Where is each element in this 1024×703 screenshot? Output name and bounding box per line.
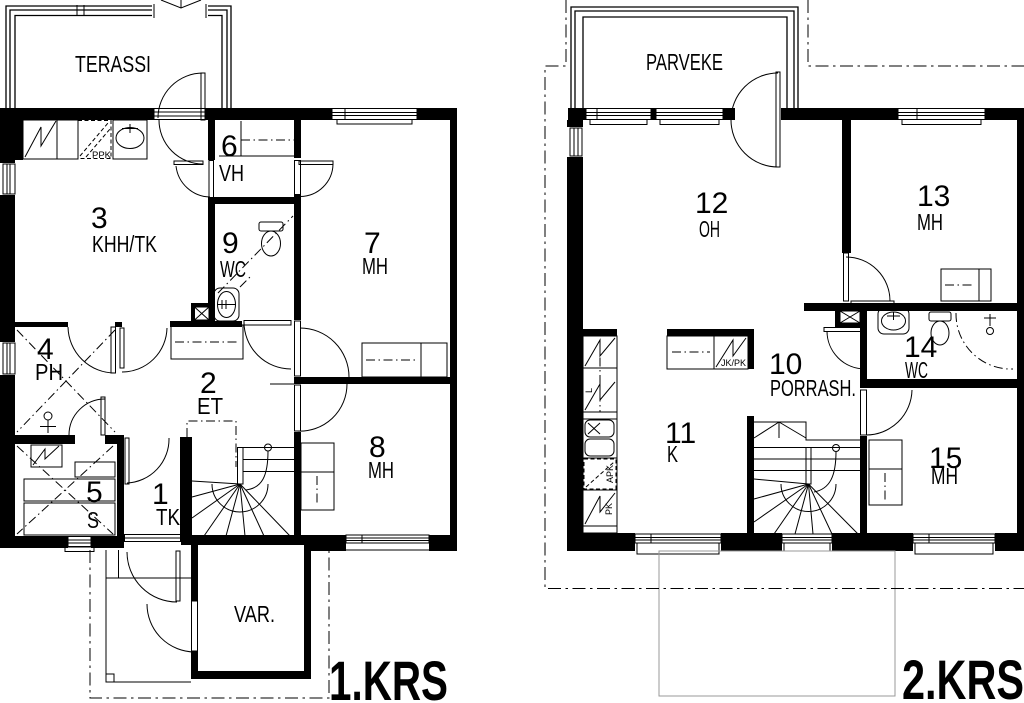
svg-text:PORRASH.: PORRASH. [770,375,856,401]
svg-text:VH: VH [219,160,244,186]
svg-text:WC: WC [905,357,928,383]
svg-text:PH: PH [35,359,63,385]
svg-text:ET: ET [197,393,223,419]
svg-text:MH: MH [931,463,958,489]
svg-text:WC: WC [220,256,246,282]
svg-text:PPK: PPK [92,150,111,160]
svg-text:PARVEKE: PARVEKE [646,49,723,75]
svg-text:TERASSI: TERASSI [75,51,151,77]
svg-text:6: 6 [221,130,238,163]
svg-text:L: L [584,388,594,393]
svg-text:OH: OH [699,216,720,242]
svg-text:JK/PK: JK/PK [721,358,746,368]
svg-text:K: K [667,441,678,467]
svg-text:MH: MH [368,457,394,483]
svg-text:KHH/TK: KHH/TK [92,231,158,257]
svg-text:2.KRS: 2.KRS [902,648,1024,703]
svg-text:S: S [87,507,99,533]
svg-text:MH: MH [362,253,388,279]
svg-text:5: 5 [86,476,103,509]
svg-text:VAR.: VAR. [234,601,275,627]
svg-text:1.KRS: 1.KRS [329,649,448,703]
svg-text:APK: APK [605,465,615,483]
svg-text:MH: MH [917,209,943,235]
svg-text:TK: TK [156,504,181,530]
svg-text:PK: PK [604,503,614,515]
